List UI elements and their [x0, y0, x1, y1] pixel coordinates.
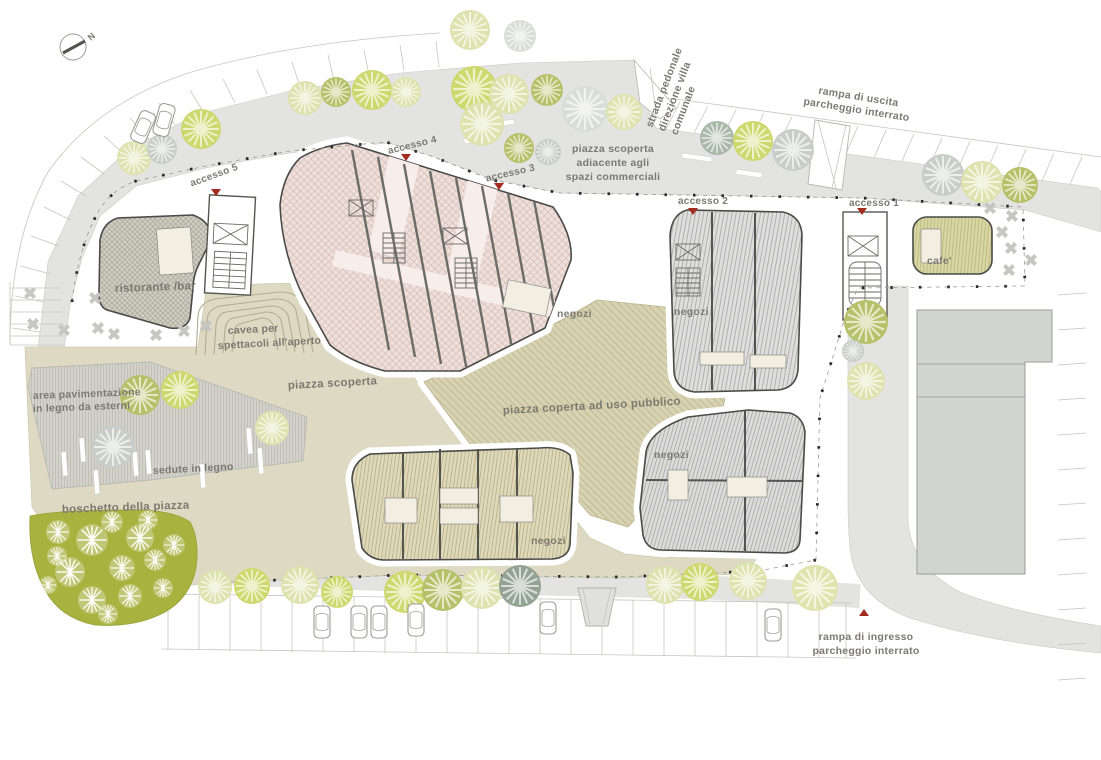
svg-text:rampa di ingresso: rampa di ingresso — [819, 631, 914, 643]
label-area-pavimentazione: area pavimentazione in legno da esterni — [33, 386, 141, 415]
label-accesso-2: accesso 2 — [678, 196, 728, 207]
label-rampa-uscita: rampa di uscita parcheggio interrato — [803, 83, 913, 124]
site-plan-canvas: N strada pedonale direzione villa comuna… — [0, 0, 1101, 760]
svg-text:piazza scoperta: piazza scoperta — [572, 143, 654, 155]
label-negozi-gray-bottom: negozi — [654, 449, 689, 461]
label-cafe: cafe' — [927, 255, 952, 267]
label-negozi-gray-top: negozi — [674, 306, 709, 318]
label-negozi-olive: negozi — [531, 535, 566, 547]
north-label: N — [86, 31, 98, 43]
parking-bottom-dividers — [168, 595, 846, 658]
ramp-entry-underground — [578, 588, 616, 626]
building-cafe — [913, 217, 992, 274]
svg-text:spazi commerciali: spazi commerciali — [566, 171, 661, 183]
building-ristorante — [99, 215, 211, 328]
north-arrow: N — [60, 31, 97, 60]
boschetto-area — [30, 510, 197, 626]
svg-text:adiacente agli: adiacente agli — [577, 157, 650, 169]
label-rampa-ingresso: rampa di ingresso parcheggio interrato — [812, 631, 919, 657]
site-plan: N strada pedonale direzione villa comuna… — [0, 0, 1101, 760]
access-block-5 — [204, 195, 255, 295]
label-piazza-adiacente: piazza scoperta adiacente agli spazi com… — [566, 143, 661, 183]
existing-building — [917, 310, 1052, 574]
svg-text:parcheggio interrato: parcheggio interrato — [812, 645, 919, 657]
building-negozi-gray-top — [670, 210, 802, 392]
marker-rampa-ingresso — [859, 609, 869, 616]
label-negozi-pink: negozi — [557, 308, 592, 320]
label-accesso-1: accesso 1 — [849, 198, 899, 209]
building-negozi-gray-bottom — [640, 410, 805, 553]
ramp-exit-underground — [808, 120, 850, 190]
